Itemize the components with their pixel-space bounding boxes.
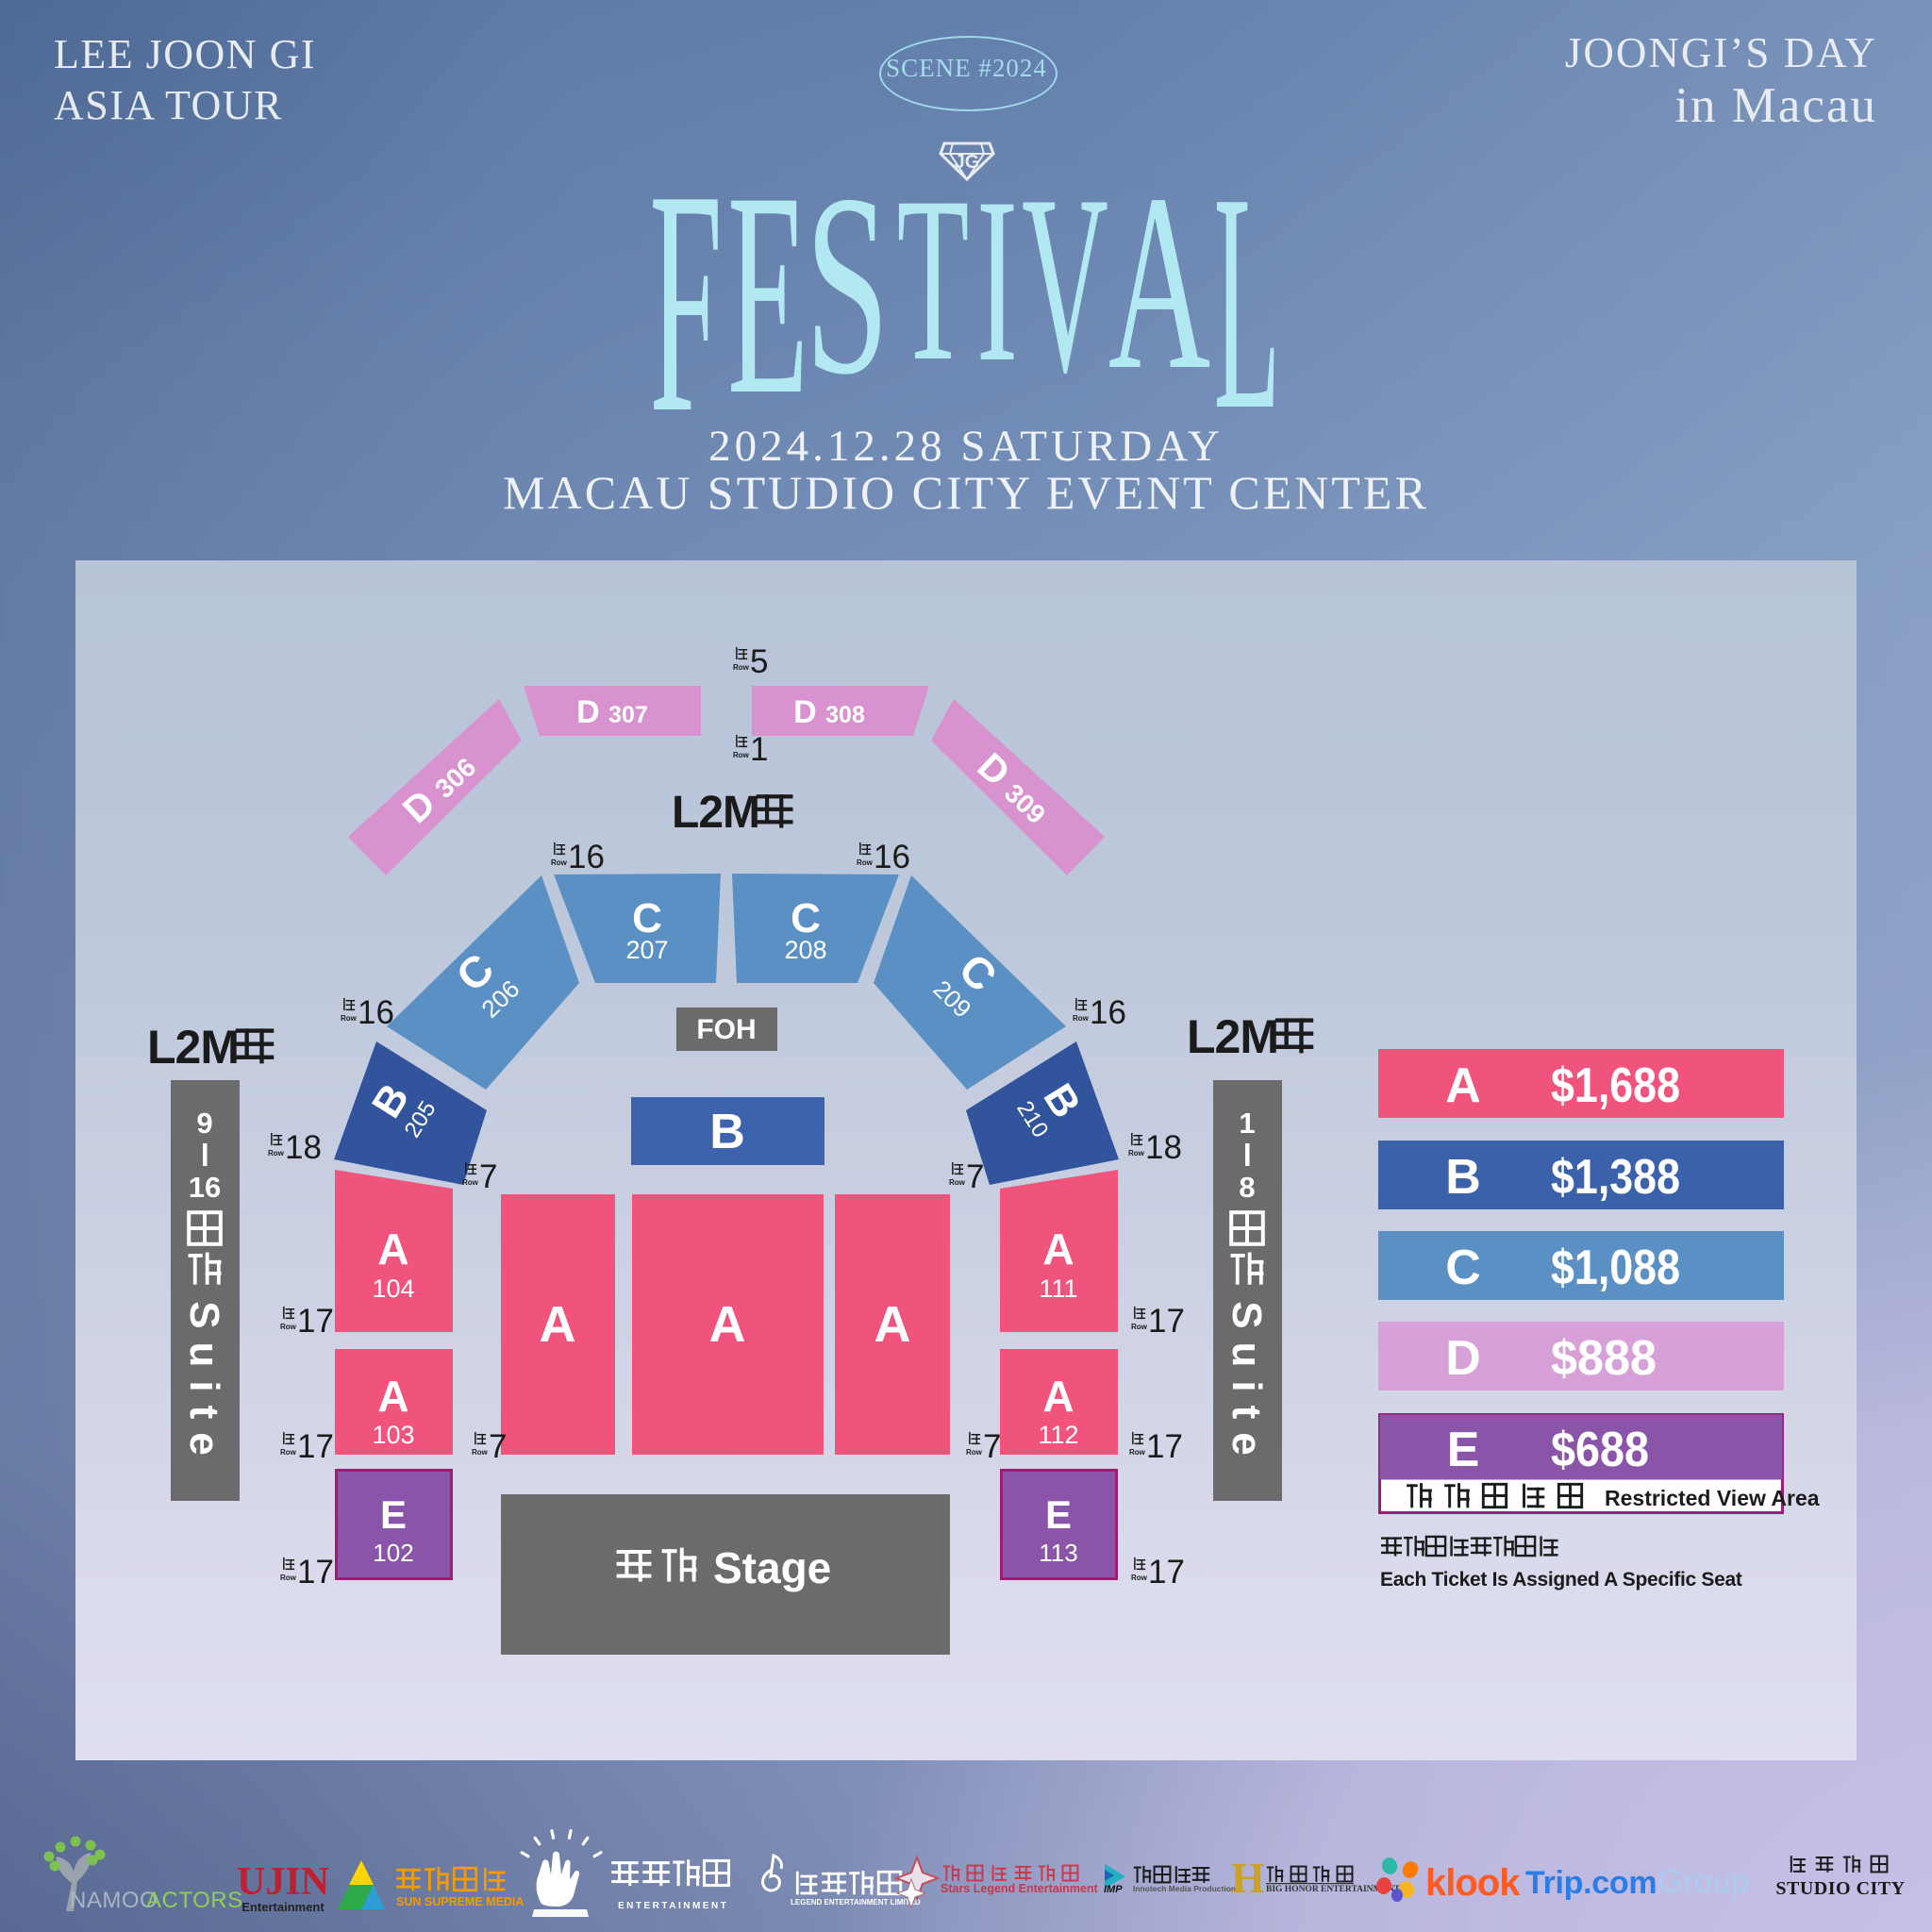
svg-text:17: 17 [297, 1554, 334, 1591]
svg-text:18: 18 [1145, 1129, 1182, 1166]
svg-text:C: C [791, 895, 821, 941]
svg-text:16: 16 [189, 1171, 221, 1204]
svg-text:V: V [1022, 142, 1108, 425]
svg-text:$888: $888 [1551, 1331, 1657, 1386]
svg-text:7: 7 [479, 1158, 497, 1195]
svg-text:ACTORS: ACTORS [146, 1888, 243, 1913]
svg-text:Row: Row [733, 663, 750, 672]
svg-text:7: 7 [489, 1428, 507, 1465]
svg-text:111: 111 [1039, 1274, 1077, 1303]
svg-text:17: 17 [297, 1428, 334, 1465]
svg-text:A: A [540, 1296, 576, 1353]
svg-text:$688: $688 [1551, 1423, 1649, 1477]
svg-text:Row: Row [341, 1014, 358, 1023]
svg-text:H: H [1231, 1854, 1265, 1902]
svg-text:A: A [709, 1296, 746, 1353]
svg-text:Row: Row [857, 858, 874, 867]
svg-text:LEGEND ENTERTAINMENT LIMITED: LEGEND ENTERTAINMENT LIMITED [791, 1898, 921, 1907]
svg-text:A: A [1042, 1372, 1074, 1421]
svg-text:Row: Row [1128, 1149, 1145, 1158]
svg-text:Trip.com: Trip.com [1525, 1865, 1657, 1901]
svg-text:Row: Row [1131, 1323, 1148, 1331]
svg-text:1: 1 [750, 731, 768, 768]
svg-text:Row: Row [462, 1178, 479, 1187]
svg-text:208: 208 [784, 936, 826, 964]
svg-text:B: B [709, 1105, 745, 1159]
svg-text:$1,388: $1,388 [1551, 1150, 1680, 1205]
svg-text:18: 18 [285, 1129, 322, 1166]
svg-text:1: 1 [1239, 1107, 1255, 1140]
svg-text:16: 16 [568, 839, 605, 875]
svg-text:F: F [649, 125, 723, 480]
svg-text:Row: Row [949, 1178, 966, 1187]
svg-text:Stage: Stage [713, 1543, 831, 1592]
svg-text:Row: Row [472, 1448, 489, 1457]
svg-text:7: 7 [966, 1158, 984, 1195]
svg-text:Row: Row [280, 1574, 297, 1582]
svg-text:B: B [1445, 1150, 1481, 1205]
svg-text:$1,688: $1,688 [1551, 1058, 1680, 1113]
svg-text:104: 104 [372, 1274, 414, 1303]
svg-text:klook: klook [1425, 1862, 1521, 1904]
svg-text:Row: Row [268, 1149, 285, 1158]
svg-text:FOH: FOH [696, 1014, 756, 1045]
svg-text:16: 16 [1090, 994, 1126, 1031]
svg-text:SUN SUPREME MEDIA: SUN SUPREME MEDIA [396, 1895, 524, 1908]
svg-text:102: 102 [373, 1539, 413, 1567]
svg-text:Each Ticket Is Assigned A Spec: Each Ticket Is Assigned A Specific Seat [1380, 1569, 1742, 1591]
svg-text:L2M: L2M [1187, 1010, 1278, 1063]
svg-text:Row: Row [733, 751, 750, 759]
svg-text:Entertainment: Entertainment [241, 1900, 325, 1914]
svg-text:UJIN: UJIN [237, 1860, 329, 1904]
svg-text:Stars Legend Entertainment: Stars Legend Entertainment [941, 1882, 1099, 1895]
svg-text:Suite: Suite [181, 1301, 227, 1469]
svg-text:Restricted View Area: Restricted View Area [1605, 1486, 1820, 1510]
svg-text:L: L [1214, 128, 1281, 475]
svg-text:T: T [897, 147, 970, 409]
svg-text:ENTERTAINMENT: ENTERTAINMENT [618, 1901, 728, 1911]
svg-text:Innotech Media Production: Innotech Media Production [1133, 1884, 1236, 1893]
svg-text:C: C [632, 895, 662, 941]
svg-text:A: A [1042, 1224, 1074, 1274]
svg-text:Row: Row [966, 1448, 983, 1457]
svg-text:17: 17 [1146, 1428, 1183, 1465]
svg-text:D: D [1445, 1331, 1481, 1386]
svg-text:L2M: L2M [147, 1021, 239, 1074]
svg-text:16: 16 [358, 994, 394, 1031]
svg-text:9: 9 [196, 1107, 212, 1140]
svg-text:A: A [874, 1296, 911, 1353]
svg-text:Group: Group [1657, 1863, 1749, 1900]
svg-text:7: 7 [983, 1428, 1001, 1465]
svg-text:L2M: L2M [672, 788, 759, 838]
svg-text:E: E [380, 1492, 407, 1537]
svg-text:A: A [377, 1224, 408, 1274]
svg-text:17: 17 [1148, 1303, 1185, 1340]
svg-text:113: 113 [1039, 1539, 1077, 1567]
svg-text:207: 207 [625, 936, 668, 964]
svg-text:E: E [727, 132, 808, 455]
svg-text:E: E [1447, 1423, 1480, 1477]
svg-text:NAMOO: NAMOO [70, 1888, 158, 1913]
svg-text:JG: JG [955, 152, 980, 173]
svg-text:A: A [1445, 1058, 1481, 1113]
svg-text:103: 103 [372, 1421, 414, 1449]
svg-text:IMP: IMP [1104, 1884, 1123, 1895]
svg-text:S: S [805, 141, 889, 428]
svg-text:$1,088: $1,088 [1551, 1241, 1680, 1295]
svg-text:Row: Row [1131, 1574, 1148, 1582]
svg-text:STUDIO CITY: STUDIO CITY [1775, 1878, 1905, 1899]
svg-text:Row: Row [1073, 1014, 1090, 1023]
svg-text:A: A [1108, 142, 1210, 422]
svg-text:16: 16 [874, 839, 910, 875]
svg-text:5: 5 [750, 643, 768, 680]
svg-text:C: C [1445, 1241, 1481, 1295]
svg-text:17: 17 [1148, 1554, 1185, 1591]
svg-text:Row: Row [1129, 1448, 1146, 1457]
svg-text:Suite: Suite [1224, 1301, 1270, 1469]
svg-text:A: A [377, 1372, 408, 1421]
svg-text:112: 112 [1038, 1421, 1078, 1449]
svg-text:8: 8 [1239, 1171, 1255, 1204]
svg-text:17: 17 [297, 1303, 334, 1340]
svg-text:Row: Row [280, 1448, 297, 1457]
svg-text:E: E [1045, 1492, 1072, 1537]
svg-text:Row: Row [551, 858, 568, 867]
svg-text:I: I [976, 150, 1018, 411]
svg-text:Row: Row [280, 1323, 297, 1331]
